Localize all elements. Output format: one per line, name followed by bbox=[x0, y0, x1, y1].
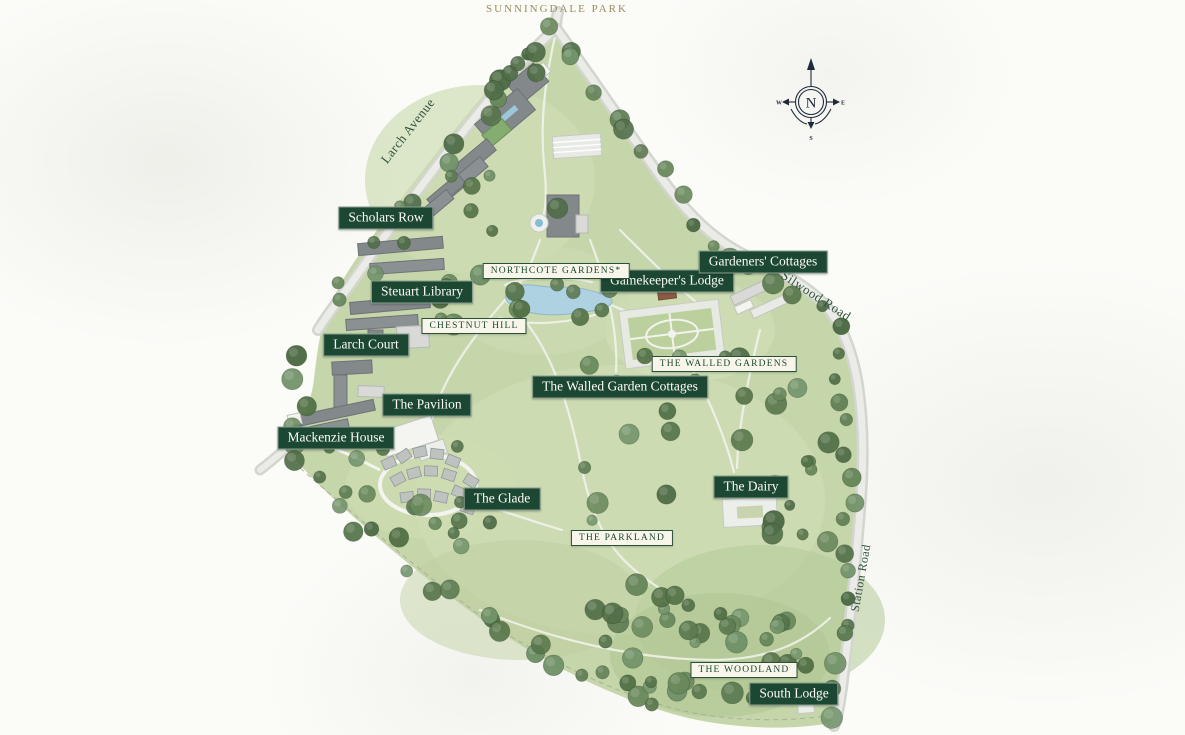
badge-scholars-row[interactable]: Scholars Row bbox=[338, 207, 433, 230]
badge-the-pavilion[interactable]: The Pavilion bbox=[382, 394, 471, 417]
site-map: SUNNINGDALE PARK N W E S Larch Avenue Si… bbox=[0, 0, 1185, 735]
page-title: SUNNINGDALE PARK bbox=[486, 3, 628, 15]
compass-s-label: S bbox=[809, 136, 813, 142]
badge-the-glade[interactable]: The Glade bbox=[464, 488, 541, 511]
compass-e-label: E bbox=[841, 101, 845, 107]
badge-the-woodland[interactable]: THE WOODLAND bbox=[690, 662, 797, 678]
badge-south-lodge[interactable]: South Lodge bbox=[749, 683, 838, 706]
badge-gardeners-cottages[interactable]: Gardeners' Cottages bbox=[699, 251, 828, 274]
badge-chestnut-hill[interactable]: CHESTNUT HILL bbox=[421, 318, 526, 334]
compass-w-label: W bbox=[776, 101, 782, 107]
badge-steuart-library[interactable]: Steuart Library bbox=[371, 281, 473, 304]
badge-the-parkland[interactable]: THE PARKLAND bbox=[571, 530, 673, 546]
badge-walled-garden-cottages[interactable]: The Walled Garden Cottages bbox=[532, 376, 708, 399]
badge-northcote-gardens[interactable]: NORTHCOTE GARDENS* bbox=[483, 263, 630, 279]
badge-larch-court[interactable]: Larch Court bbox=[323, 334, 409, 357]
compass-n-label: N bbox=[806, 96, 817, 112]
badge-the-walled-gardens[interactable]: THE WALLED GARDENS bbox=[652, 356, 797, 372]
map-illustration bbox=[0, 0, 1185, 735]
badge-the-dairy[interactable]: The Dairy bbox=[713, 476, 788, 499]
compass-rose-icon: N W E S bbox=[775, 54, 847, 144]
fountain bbox=[530, 214, 548, 232]
badge-mackenzie-house[interactable]: Mackenzie House bbox=[277, 427, 394, 450]
